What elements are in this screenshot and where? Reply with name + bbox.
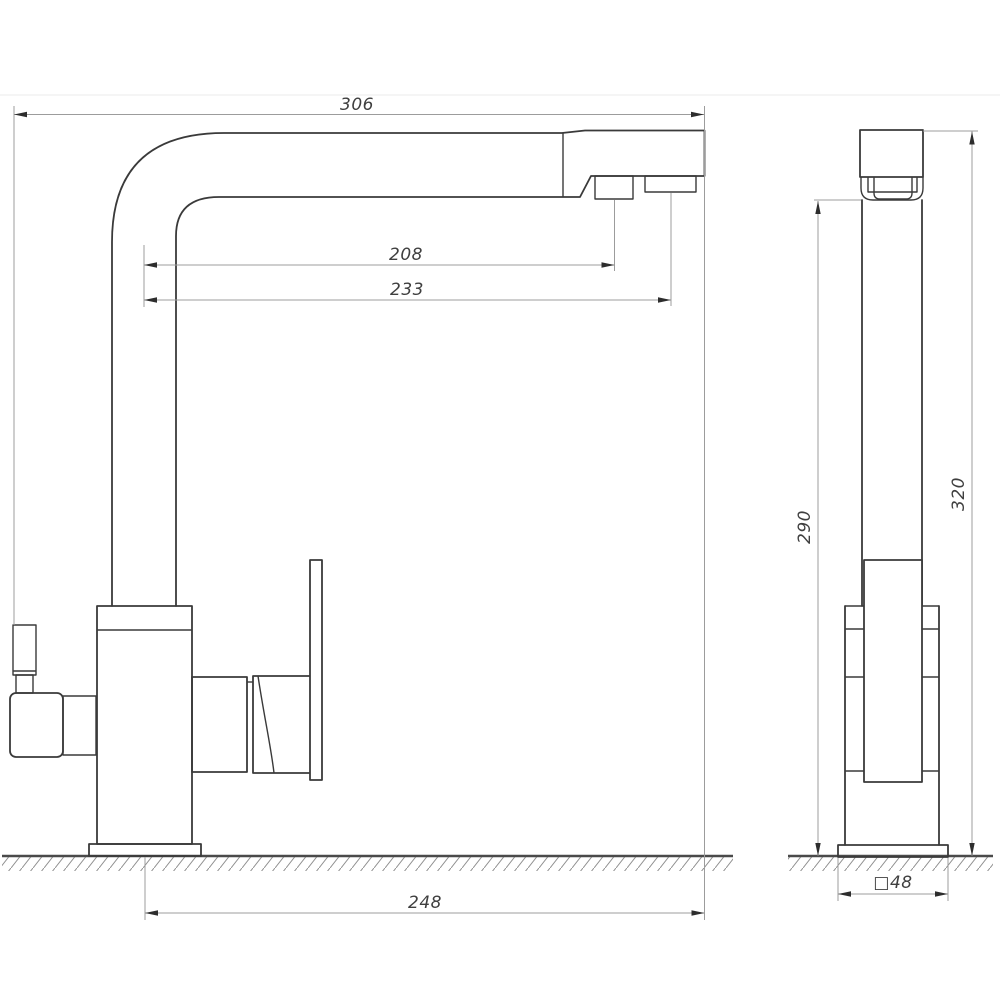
lever-handle-stick-side [864,560,922,782]
filter-valve-connector [63,696,96,755]
dim-label-48: □48 [873,873,912,893]
dimension-arrowheads [14,112,975,916]
nozzle-ring-side [868,177,917,192]
base-plate-front [89,844,201,856]
dim-label-233: 233 [390,280,424,300]
spout-underside-side [861,177,923,200]
spout-nozzle-1 [595,176,633,199]
drawing-page: 306 208 233 248 290 320 □48 [0,0,1000,1000]
dim-label-306: 306 [340,95,374,115]
lever-body [253,676,317,773]
lever-handle-stick-front [310,560,322,780]
filter-knob-neck [16,675,33,693]
dim-label-208: 208 [389,245,423,265]
dim-label-320: 320 [949,477,969,511]
faucet-spout-tube [112,131,705,607]
filter-valve-body [10,693,63,757]
spout-nozzle-2 [645,176,696,192]
nozzle-tip-side [874,177,912,199]
body-housing-front [97,606,192,844]
dimensions: 306 208 233 248 290 320 □48 [14,95,978,920]
spout-head-side [860,130,923,177]
dim-label-248: 248 [408,893,442,913]
filter-knob [13,625,36,675]
lever-cartridge-block [192,677,247,772]
lever-body-curve [258,676,274,773]
ground-hatch-side [788,857,993,871]
technical-drawing-canvas: 306 208 233 248 290 320 □48 [0,0,1000,1000]
dim-label-290: 290 [795,510,815,544]
column-side [862,200,922,606]
front-view [2,131,733,872]
ground-hatch-front [2,857,733,871]
